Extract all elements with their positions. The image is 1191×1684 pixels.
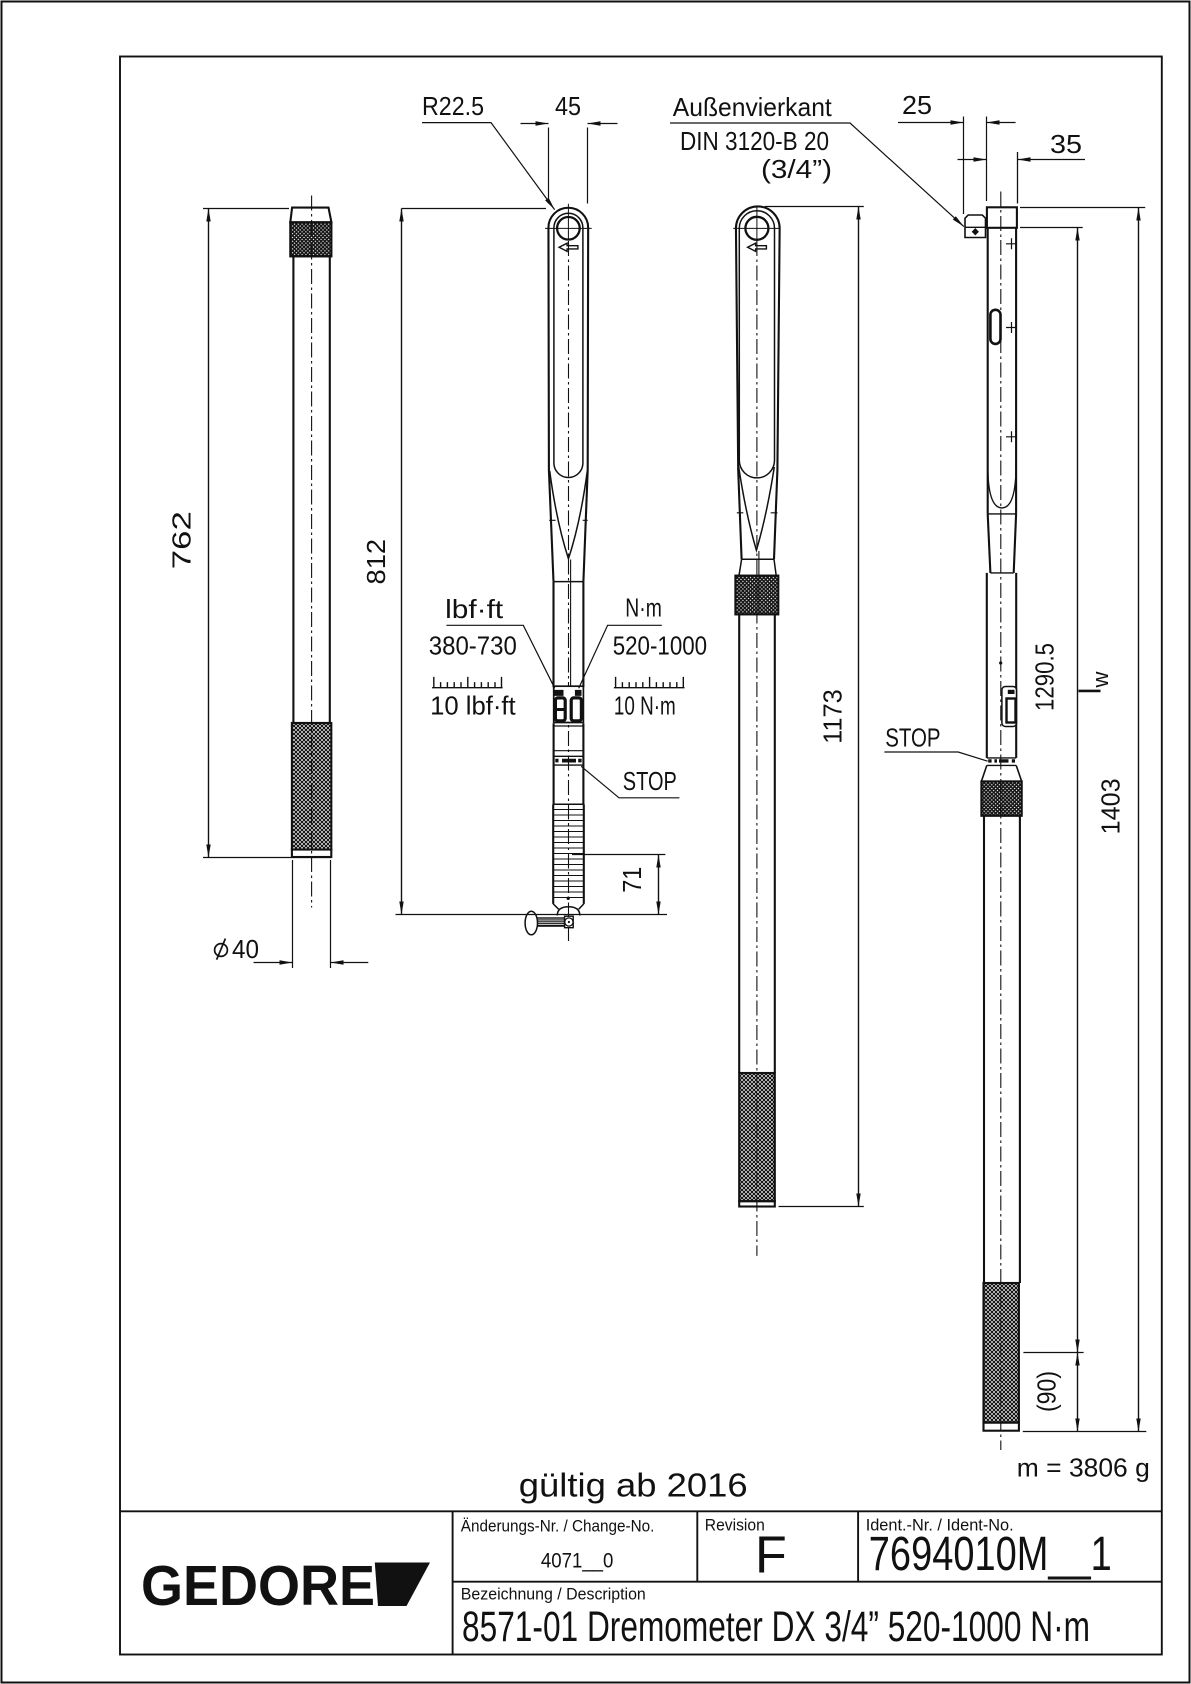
svg-text:lbf·ft: lbf·ft bbox=[445, 594, 504, 624]
svg-text:812: 812 bbox=[361, 539, 391, 585]
svg-text:1403: 1403 bbox=[1096, 778, 1126, 834]
svg-text:R22.5: R22.5 bbox=[422, 91, 484, 121]
svg-text:45: 45 bbox=[555, 91, 581, 121]
svg-text:1173: 1173 bbox=[818, 689, 848, 744]
svg-text:Bezeichnung / Description: Bezeichnung / Description bbox=[461, 1585, 646, 1604]
svg-text:GEDORE: GEDORE bbox=[141, 1554, 375, 1618]
svg-text:380-730: 380-730 bbox=[429, 631, 517, 661]
svg-text:7694010M__1: 7694010M__1 bbox=[869, 1528, 1112, 1581]
svg-text:F: F bbox=[755, 1527, 787, 1585]
svg-text:(3/4”): (3/4”) bbox=[761, 154, 832, 184]
svg-text:N·m: N·m bbox=[625, 593, 662, 623]
svg-text:10 N·m: 10 N·m bbox=[614, 691, 676, 721]
svg-text:Änderungs-Nr. / Change-No.: Änderungs-Nr. / Change-No. bbox=[461, 1517, 655, 1536]
svg-text:71: 71 bbox=[617, 867, 647, 893]
svg-text:1290.5: 1290.5 bbox=[1030, 643, 1060, 711]
svg-text:762: 762 bbox=[167, 511, 197, 569]
svg-text:4071__0: 4071__0 bbox=[541, 1550, 614, 1573]
svg-text:STOP: STOP bbox=[623, 766, 677, 796]
svg-text:Außenvierkant: Außenvierkant bbox=[673, 92, 833, 122]
svg-text:10 lbf·ft: 10 lbf·ft bbox=[430, 691, 516, 721]
svg-text:m = 3806 g: m = 3806 g bbox=[1017, 1453, 1150, 1483]
svg-text:gültig ab 2016: gültig ab 2016 bbox=[519, 1467, 748, 1504]
svg-text:8571-01 Dremometer DX 3/4” 520: 8571-01 Dremometer DX 3/4” 520-1000 N·m bbox=[462, 1603, 1090, 1651]
svg-text:STOP: STOP bbox=[885, 723, 940, 753]
svg-text:DIN 3120-B 20: DIN 3120-B 20 bbox=[680, 126, 829, 156]
svg-text:35: 35 bbox=[1050, 129, 1082, 159]
svg-text:40: 40 bbox=[232, 934, 259, 964]
svg-text:520-1000: 520-1000 bbox=[613, 631, 707, 661]
svg-text:25: 25 bbox=[902, 90, 932, 120]
svg-text:(90): (90) bbox=[1032, 1371, 1062, 1412]
